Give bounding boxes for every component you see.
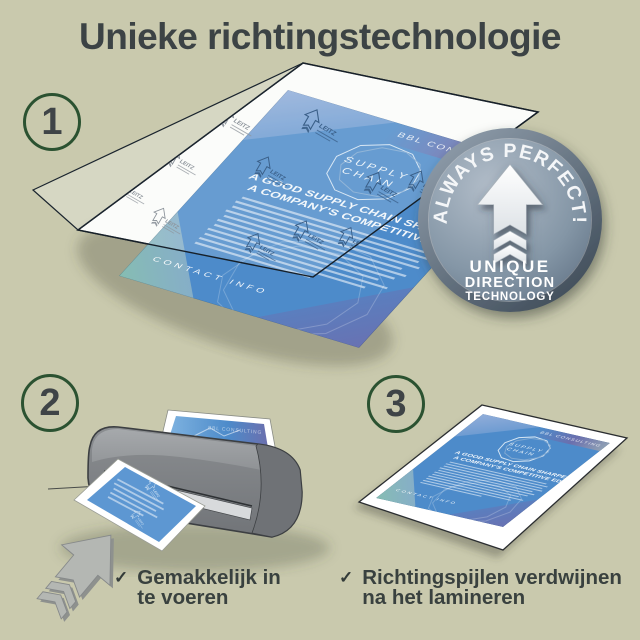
caption-line: Gemakkelijk in	[137, 568, 281, 588]
caption-easy-feeding: ✓ Gemakkelijk in te voeren	[114, 568, 281, 608]
checkmark-icon: ✓	[339, 568, 353, 608]
step-number: 3	[385, 383, 406, 426]
illustration: LEITZ BBL CONSULTING	[0, 0, 640, 640]
step-1-number-badge: 1	[23, 93, 81, 151]
caption-line: na het lamineren	[362, 588, 622, 608]
always-perfect-badge: ALWAYS PERFECT! UNIQUE DIRECTION TECHNOL…	[418, 128, 602, 312]
step-number: 2	[39, 382, 60, 425]
infographic-canvas: Unieke richtingstechnologie	[0, 0, 640, 640]
badge-label-2: DIRECTION	[465, 275, 556, 291]
badge-label-3: TECHNOLOGY	[465, 291, 554, 303]
step-number: 1	[41, 101, 62, 144]
step-2-number-badge: 2	[21, 374, 79, 432]
caption-line: Richtingspijlen verdwijnen	[362, 568, 622, 588]
caption-arrows-disappear: ✓ Richtingspijlen verdwijnen na het lami…	[339, 568, 622, 608]
checkmark-icon: ✓	[114, 568, 128, 608]
step-3-number-badge: 3	[367, 375, 425, 433]
caption-line: te voeren	[137, 588, 281, 608]
badge-label-1: UNIQUE	[469, 257, 550, 276]
